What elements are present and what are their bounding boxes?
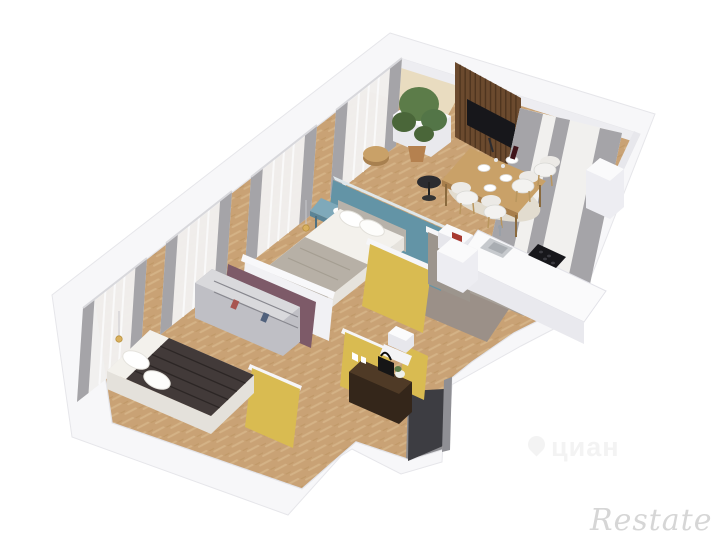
glass — [494, 158, 498, 162]
chair-seat — [512, 179, 534, 193]
watermark-portal-text: циан — [551, 434, 620, 461]
chair-leg — [473, 203, 474, 214]
floorplan-page: циан Restate — [0, 0, 725, 544]
plate — [484, 185, 496, 192]
chair-leg — [551, 175, 552, 186]
entry-flowers — [395, 366, 402, 372]
watermark-brand: Restate — [590, 503, 713, 538]
chair-seat — [534, 163, 556, 177]
burner — [543, 258, 547, 261]
watermark-portal: циан — [528, 434, 620, 461]
burner — [551, 262, 555, 265]
pendant-light — [116, 336, 122, 342]
chair-seat — [456, 191, 478, 205]
pendant-light — [303, 225, 309, 231]
plate — [500, 175, 512, 182]
chair-leg — [488, 217, 489, 228]
chair-leg — [516, 191, 517, 202]
floorplan-render — [0, 0, 725, 544]
chair-leg — [460, 203, 461, 214]
plant-foliage — [392, 112, 416, 132]
plant-pot — [408, 146, 426, 162]
glass — [501, 164, 505, 168]
pin-icon — [524, 432, 548, 456]
chair-leg — [538, 175, 539, 186]
chair-seat — [484, 205, 506, 219]
chair-leg — [529, 191, 530, 202]
burner — [547, 255, 551, 258]
burner — [539, 251, 543, 254]
balcony-stool — [363, 146, 389, 162]
side-table-base — [422, 195, 436, 201]
plate — [478, 165, 490, 172]
plant-foliage — [414, 126, 434, 142]
faucet-head — [498, 225, 502, 229]
